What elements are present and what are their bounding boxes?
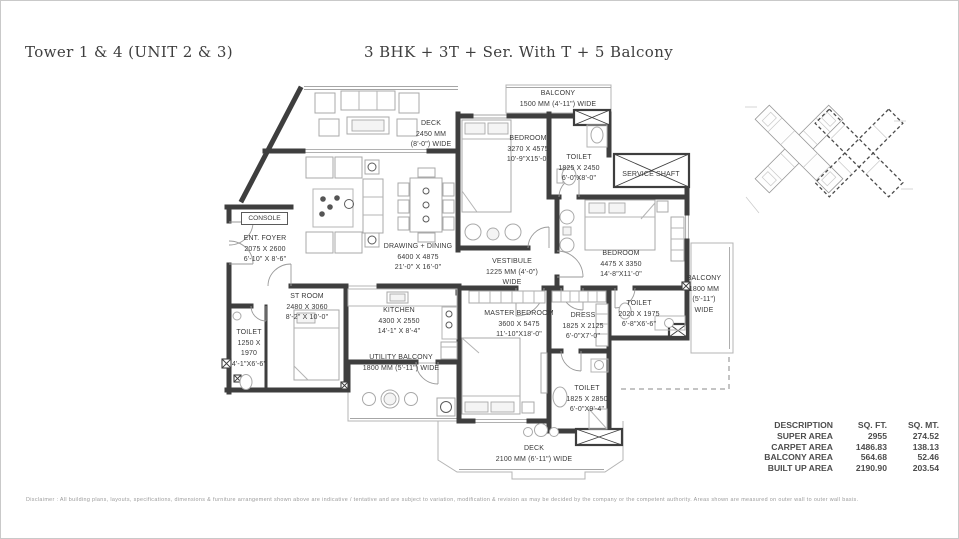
area-table-row: BUILT UP AREA 2190.90 203.54 bbox=[753, 463, 941, 474]
area-table: DESCRIPTION SQ. FT. SQ. MT. SUPER AREA 2… bbox=[753, 420, 941, 474]
area-table-row: CARPET AREA 1486.83 138.13 bbox=[753, 442, 941, 453]
room-label-utility-balcony: UTILITY BALCONY1800 MM (5'-11") WIDE bbox=[351, 353, 451, 374]
room-label-deck-bottom: DECK2100 MM (6'-11") WIDE bbox=[484, 444, 584, 465]
room-label-toilet-bottom: TOILET1825 X 28506'-0"X9'-4" bbox=[537, 384, 637, 416]
service-shaft-label: SERVICE SHAFT bbox=[622, 171, 680, 178]
area-table-row: SUPER AREA 2955 274.52 bbox=[753, 431, 941, 442]
floor-plan-page: Tower 1 & 4 (UNIT 2 & 3) 3 BHK + 3T + Se… bbox=[0, 0, 959, 539]
room-label-bedroom-right: BEDROOM4475 X 335014'-8"X11'-0" bbox=[571, 249, 671, 281]
utility-furniture-icon bbox=[363, 390, 456, 416]
drawing-sofa-set-icon bbox=[306, 157, 383, 253]
room-label-toilet-left: TOILET1250 X19704'-1"X6'-6" bbox=[227, 328, 271, 370]
room-label-deck-top: DECK2450 MM(8'-0") WIDE bbox=[381, 119, 481, 151]
room-label-vestibule: VESTIBULE1225 MM (4'-0")WIDE bbox=[462, 257, 562, 289]
room-label-kitchen: KITCHEN4300 X 255014'-1" X 8'-4" bbox=[349, 306, 449, 338]
dining-table-icon bbox=[398, 168, 454, 242]
room-label-balcony-top: BALCONY1500 MM (4'-11") WIDE bbox=[508, 89, 608, 110]
deck-bottom-table-icon bbox=[524, 424, 559, 437]
disclaimer-text: Disclaimer : All building plans, layouts… bbox=[26, 497, 941, 503]
room-label-drawing-dining: DRAWING + DINING6400 X 487521'-0" X 16'-… bbox=[368, 242, 468, 274]
key-plan bbox=[725, 75, 932, 226]
area-table-row: BALCONY AREA 564.68 52.46 bbox=[753, 452, 941, 463]
room-label-toilet-mid: TOILET2020 X 19756'-8"X6'-6" bbox=[589, 299, 689, 331]
room-label-ent-foyer: ENT. FOYER2075 X 26006'-10" X 8'-6" bbox=[215, 234, 315, 266]
console-label: CONSOLE bbox=[241, 212, 288, 225]
area-table-header: DESCRIPTION SQ. FT. SQ. MT. bbox=[753, 420, 941, 431]
room-label-st-room: ST ROOM2480 X 30608'-2" X 10'-0" bbox=[257, 292, 357, 324]
room-label-toilet-top: TOILET1825 X 24506'-0"X8'-0" bbox=[529, 153, 629, 185]
